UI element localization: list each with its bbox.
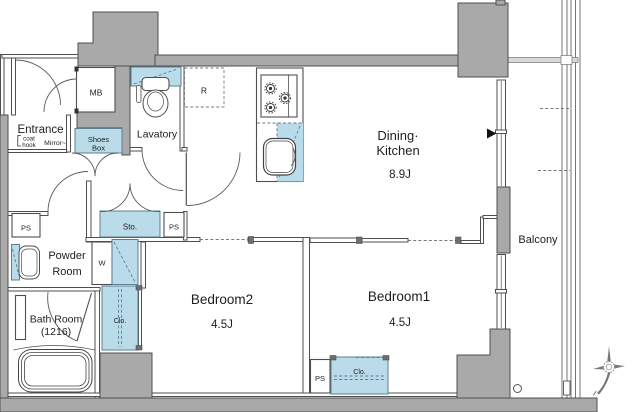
- bedroom2-size: 4.5J: [211, 319, 233, 331]
- meter-box-label: MB: [90, 88, 103, 98]
- storage-label: Sto.: [123, 223, 137, 232]
- bedroom2-label: Bedroom2: [191, 292, 253, 307]
- balcony-label: Balcony: [518, 234, 558, 246]
- powder-room-label-1: Powder: [48, 250, 86, 262]
- powder-room-label-2: Room: [52, 266, 81, 278]
- bedroom1-balcony-window: [496, 255, 507, 330]
- lavatory-label: Lavatory: [137, 129, 178, 141]
- shoes-box-label-2: Box: [92, 144, 105, 153]
- dk-balcony-window: [496, 80, 507, 187]
- entrance-label: Entrance: [17, 124, 63, 136]
- balcony-drain-icon: [514, 385, 522, 393]
- dining-kitchen-label-2: Kitchen: [376, 143, 419, 158]
- coat-hook-label-2: hook: [22, 142, 36, 149]
- pipe-space-1-label: PS: [21, 224, 31, 233]
- washer-label: W: [98, 259, 106, 268]
- bathtub-icon: [19, 350, 93, 393]
- kitchen-counter: [257, 68, 304, 182]
- closet-bedroom2-label: Clo.: [114, 318, 127, 325]
- closet-bedroom1-label: Clo.: [353, 369, 366, 376]
- stove-icon: [261, 75, 297, 117]
- bath-room-label-1: Bath Room: [30, 314, 83, 326]
- floor-plan-page: Dining· Kitchen 8.9J Bedroom2 4.5J Bedro…: [0, 0, 640, 412]
- bedroom1-label: Bedroom1: [368, 289, 430, 304]
- bath-room-label-2: (1216): [41, 326, 71, 338]
- pipe-space-2-label: PS: [169, 223, 179, 232]
- railing-post: [564, 381, 571, 395]
- pipe-space-3-label: PS: [315, 374, 325, 383]
- dining-kitchen-size: 8.9J: [389, 169, 411, 181]
- washbasin-icon: [12, 245, 40, 281]
- refrigerator-label: R: [201, 86, 207, 96]
- sink-icon: [264, 139, 296, 176]
- dining-kitchen-label-1: Dining·: [377, 128, 418, 143]
- floor-plan-image: Dining· Kitchen 8.9J Bedroom2 4.5J Bedro…: [0, 0, 640, 412]
- bedroom1-size: 4.5J: [389, 317, 411, 329]
- mirror-label: Mirror~: [44, 140, 66, 147]
